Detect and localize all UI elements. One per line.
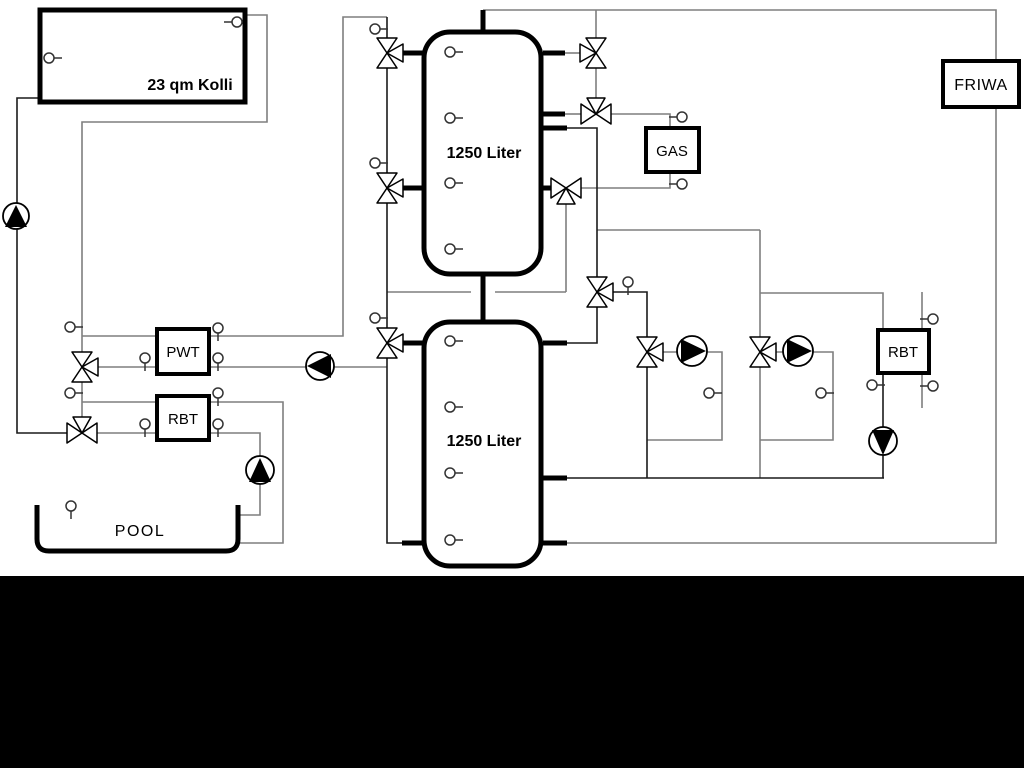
rbt-left-label: RBT (168, 411, 198, 428)
temperature-sensor (66, 501, 76, 519)
rbt-right-label: RBT (888, 344, 918, 361)
three-way-valve-tank-upper-right-top (580, 38, 606, 68)
pwt-label: PWT (166, 344, 199, 361)
tank-lower-label: 1250 Liter (447, 433, 522, 450)
pump-pool (246, 456, 274, 484)
schematic-page: 23 qm Kolli 1250 Liter 1250 Liter GAS FR… (0, 0, 1024, 768)
tank-upper-label: 1250 Liter (447, 145, 522, 162)
three-way-valve-tank-upper-left-top (377, 38, 403, 68)
pump-circuit1 (677, 336, 707, 366)
three-way-valve-circuit2 (750, 337, 776, 367)
gas-label: GAS (656, 143, 688, 160)
three-way-valve-gas-supply (581, 98, 611, 124)
pipe-tank-left-run (387, 17, 402, 543)
pipe-gas-return (581, 172, 670, 188)
temperature-sensor (704, 388, 722, 398)
temperature-sensor (669, 112, 687, 122)
bottom-bar (0, 576, 1024, 768)
temperature-sensor (213, 419, 223, 437)
pipe-tank-right-run (567, 128, 597, 343)
friwa-label: FRIWA (954, 77, 1007, 94)
pipe-gas-supply (611, 114, 670, 128)
temperature-sensor (213, 353, 223, 371)
temperature-sensor (140, 353, 150, 371)
three-way-valve-tank-lower-left (377, 328, 403, 358)
pump-pwt (306, 352, 334, 380)
three-way-valve-circuit1 (637, 337, 663, 367)
temperature-sensor (816, 388, 834, 398)
pump-circuit2 (783, 336, 813, 366)
three-way-valve-pwt (72, 352, 98, 382)
temperature-sensor (370, 24, 388, 34)
three-way-valve-tank-upper-left-bottom (377, 173, 403, 203)
temperature-sensor (65, 388, 83, 398)
temperature-sensor (65, 322, 83, 332)
temperature-sensor (370, 158, 388, 168)
pool-label: POOL (115, 523, 165, 540)
pipe-pump-to-pool (238, 484, 260, 515)
three-way-valve-pool (67, 417, 97, 443)
pump-solar (3, 203, 29, 229)
three-way-valve-gas-return (551, 178, 581, 204)
temperature-sensor (213, 323, 223, 341)
pipe-circuit1-supply (613, 292, 647, 478)
pipe-rbt2-supply (760, 293, 883, 330)
pipe-collector-return (17, 98, 67, 433)
temperature-sensor (140, 419, 150, 437)
temperature-sensor (213, 388, 223, 406)
temperature-sensor (669, 179, 687, 189)
pump-rbt-right (869, 427, 897, 455)
temperature-sensor (370, 313, 388, 323)
three-way-valve-distribution (587, 277, 613, 307)
diagram-canvas: 23 qm Kolli 1250 Liter 1250 Liter GAS FR… (0, 0, 1024, 576)
collector-label: 23 qm Kolli (147, 77, 232, 94)
